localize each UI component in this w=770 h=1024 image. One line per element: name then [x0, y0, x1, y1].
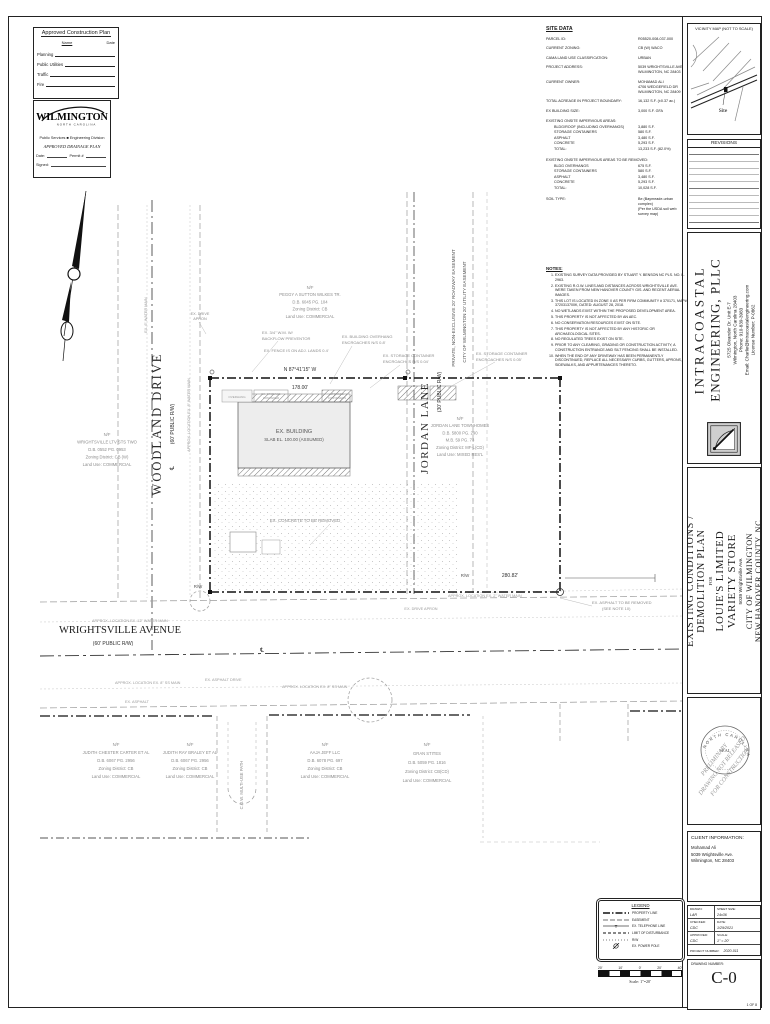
- approval-title: Approved Construction Plan: [41, 30, 111, 37]
- power-pole-icon: [603, 943, 629, 949]
- engineer-name-1: INTRACOASTAL: [692, 232, 708, 442]
- plan-sheet: { "colors":{"ink":"#1a1a1a","muted":"#8a…: [0, 0, 770, 1024]
- site-data-label: CURRENT OWNER:: [546, 80, 638, 95]
- removed-rows: BLDG OVERHANGS675 S.F.STORAGE CONTAINERS…: [546, 164, 688, 192]
- vicinity-map: Site: [689, 31, 759, 127]
- wilmington-signed-label: Signed:: [36, 163, 49, 167]
- note-item: EXISTING R.O.W. LINES AND DISTANCES ACRO…: [555, 284, 688, 298]
- scale-bar: [598, 970, 682, 977]
- signature-line: [55, 56, 115, 57]
- site-data-row: PROJECT ADDRESS:5039 WRIGHTSVILLE AVEWIL…: [546, 65, 688, 75]
- legend-item-label: EX. TELEPHONE LINE: [632, 924, 665, 928]
- legend-item-label: EASEMENT: [632, 918, 650, 922]
- approval-row: Fire: [37, 77, 115, 87]
- notes-block: NOTES: EXISTING SURVEY DATA PROVIDED BY …: [546, 266, 688, 369]
- impervious-rows: BLDG/ROOF (INCLUDING OVERHANGS)3,880 S.F…: [546, 125, 688, 153]
- note-item: THIS PROPERTY IS NOT AFFECTED BY AN AEC.: [555, 315, 688, 320]
- soil-type-label: SOIL TYPE:: [546, 197, 638, 217]
- scale-caption: Scale: 1"=20': [598, 979, 682, 984]
- engineer-titleblock: INTRACOASTAL ENGINEERING, PLLC 5725 Olea…: [687, 232, 761, 464]
- legend-item: EX. POWER POLE: [603, 943, 678, 950]
- scale-tick-label: 0': [639, 966, 642, 970]
- note-item: WHEN THE END OF ANY DRIVEWAY HAS BEEN PE…: [555, 354, 688, 368]
- approval-signature-rows: PlanningPublic UtilitiesTrafficFire: [37, 47, 115, 87]
- impervious-value: 13,233 S.F. (82.0%): [638, 147, 671, 153]
- legend-item: TEX. TELEPHONE LINE: [603, 923, 678, 930]
- legend-item-label: LIMIT OF DISTURBANCE: [632, 931, 669, 935]
- scale-tick-label: 10': [618, 966, 622, 970]
- site-data-value: 5039 WRIGHTSVILLE AVEWILMINGTON, NC 2840…: [638, 65, 683, 75]
- legend-item: R/W: [603, 936, 678, 943]
- drawing-number-value: C-0: [688, 968, 760, 988]
- site-data-value-line: WILMINGTON, NC 28403: [638, 70, 683, 75]
- legend-title: LEGEND: [603, 903, 678, 908]
- approval-col-name: Name: [37, 40, 97, 45]
- scale-tick-label: 20': [657, 966, 661, 970]
- site-data-value-line: URBAN: [638, 56, 651, 61]
- site-data-value-line: CB (W) WACO: [638, 46, 662, 51]
- client-info-box: CLIENT INFORMATION: Mohamad Ali 5039 Wri…: [687, 831, 761, 902]
- legend-box: LEGEND PROPERTY LINEEASEMENTTEX. TELEPHO…: [596, 898, 685, 962]
- legend-line-sample: [603, 937, 629, 943]
- approval-row-label: Planning: [37, 52, 53, 57]
- approved-value: CDC: [688, 938, 714, 944]
- wilmington-date-label: Date:: [36, 154, 45, 158]
- approval-row: Public Utilities: [37, 57, 115, 67]
- site-data-value: 16,132 S.F. (±0.37 ac.): [638, 99, 675, 104]
- site-data-label: CAMA LAND USE CLASSIFICATION:: [546, 56, 638, 61]
- legend-line-sample: [603, 917, 629, 923]
- legend-item-label: EX. POWER POLE: [632, 944, 659, 948]
- wilmington-state: NORTH CAROLINA: [57, 123, 97, 127]
- soil-type-value: Be (Baymeade-urban complex): [638, 197, 688, 207]
- revisions-title: REVISIONS: [688, 140, 760, 148]
- site-data-row: TOTAL ACREAGE IN PROJECT BOUNDARY:16,132…: [546, 99, 688, 104]
- checked-value: CDC: [688, 925, 714, 931]
- note-item: THIS PROPERTY IS NOT AFFECTED BY ANY HIS…: [555, 327, 688, 336]
- site-data-value: MOHAMAD ALI4706 WEDGEFIELD DRWILMINGTON,…: [638, 80, 681, 95]
- site-data-value-line: R05520-008-037-000: [638, 37, 673, 42]
- revisions-empty-rows: [689, 148, 759, 224]
- drawn-value: LAR: [688, 912, 714, 918]
- impervious-row: TOTAL:10,028 S.F.: [546, 186, 688, 192]
- engineer-seal: NORTH CAROLINA SEAL PRELIMINARY DRAWING …: [688, 698, 761, 825]
- notes-list: EXISTING SURVEY DATA PROVIDED BY STUART …: [546, 273, 688, 368]
- site-data-rows: PARCEL ID:R05520-008-037-000CURRENT ZONI…: [546, 37, 688, 114]
- engineer-logo: [706, 421, 742, 457]
- scale-value: 1" = 20': [715, 938, 760, 944]
- site-data-value: R05520-008-037-000: [638, 37, 673, 42]
- scale-tick-label: 20': [598, 966, 602, 970]
- impervious-title: EXISTING ONSITE IMPERVIOUS AREAS:: [546, 119, 688, 123]
- notes-title: NOTES:: [546, 266, 688, 271]
- graphic-scale: 20'10'0'20'40' Scale: 1"=20': [598, 966, 682, 984]
- approval-row-label: Fire: [37, 82, 44, 87]
- legend-line-sample: T: [603, 923, 629, 929]
- project-title-line2: DEMOLITION PLAN: [696, 472, 707, 690]
- site-data-label: EX BUILDING SIZE:: [546, 109, 638, 114]
- legend-line-sample: [603, 910, 629, 916]
- legend-item-label: R/W: [632, 938, 638, 942]
- client-city: Wilmington, NC 28403: [691, 858, 757, 864]
- approval-row-label: Traffic: [37, 72, 48, 77]
- site-data-label: TOTAL ACREAGE IN PROJECT BOUNDARY:: [546, 99, 638, 104]
- client-info-title: CLIENT INFORMATION:: [691, 835, 757, 842]
- note-item: THIS LOT IS LOCATED IN ZONE X AS PER FIR…: [555, 299, 688, 308]
- approval-row: Planning: [37, 47, 115, 57]
- project-number-value: 2020-011: [722, 948, 741, 954]
- soil-type-source: (Per the USDA soil web survey map): [638, 207, 688, 217]
- project-client-line2: VARIETY STORE: [726, 472, 738, 690]
- site-data-value-line: 16,132 S.F. (±0.37 ac.): [638, 99, 675, 104]
- vicinity-site-marker: [724, 87, 728, 92]
- site-data-row: PARCEL ID:R05520-008-037-000: [546, 37, 688, 42]
- wilmington-wordmark: WILMINGTON: [36, 112, 108, 123]
- site-data-row: CURRENT OWNER:MOHAMAD ALI4706 WEDGEFIELD…: [546, 80, 688, 95]
- impervious-row: TOTAL:13,233 S.F. (82.0%): [546, 147, 688, 153]
- impervious-label: TOTAL:: [546, 186, 638, 192]
- scale-tick-label: 40': [678, 966, 682, 970]
- note-item: NO CONSERVATION RESOURCES EXIST ON SITE.: [555, 321, 688, 326]
- drawing-info-table: DRAWN: LAR SHEET SIZE: 24x36 CHECKED: CD…: [687, 905, 761, 956]
- site-data-value: CB (W) WACO: [638, 46, 662, 51]
- revisions-box: REVISIONS: [687, 139, 761, 229]
- svg-text:T: T: [615, 924, 618, 929]
- approval-row-label: Public Utilities: [37, 62, 63, 67]
- engineer-license: License Number: P-0862: [750, 232, 756, 442]
- project-city: CITY OF WILMINGTON: [745, 472, 754, 690]
- site-data-label: PROJECT ADDRESS:: [546, 65, 638, 75]
- date-value: 1/29/2021: [715, 925, 760, 931]
- site-data-block: SITE DATA PARCEL ID:R05520-008-037-000CU…: [546, 26, 688, 222]
- wilmington-plan-type: APPROVED DRAINAGE PLAN: [36, 144, 108, 149]
- signature-line: [50, 76, 115, 77]
- drawing-number-label: DRAWING NUMBER:: [688, 960, 760, 966]
- note-item: PRIOR TO ANY CLEARING, GRADING OR CONSTR…: [555, 343, 688, 352]
- vicinity-map-box: VICINITY MAP (NOT TO SCALE) Site: [687, 23, 761, 135]
- site-data-label: PARCEL ID:: [546, 37, 638, 42]
- wilmington-logo: WILMINGTON NORTH CAROLINA: [36, 103, 108, 129]
- legend-item: PROPERTY LINE: [603, 910, 678, 917]
- engineer-name-2: ENGINEERING, PLLC: [708, 232, 724, 442]
- project-number-label: PROJECT NUMBER:: [688, 948, 722, 954]
- site-data-value-line: 3,000 S.F. GFA: [638, 109, 663, 114]
- seal-preliminary-overlay: PRELIMINARY DRAWING NOT RELEASED FOR CON…: [689, 729, 756, 804]
- legend-item: LIMIT OF DISTURBANCE: [603, 930, 678, 937]
- project-title-line1: EXISTING CONDITIONS /: [687, 472, 696, 690]
- drawing-number-box: DRAWING NUMBER: C-0 1 OF 8: [687, 959, 761, 1010]
- site-data-title: SITE DATA: [546, 26, 688, 32]
- project-county: NEW HANOVER COUNTY, NC: [754, 472, 761, 690]
- site-data-value-line: WILMINGTON, NC 28409: [638, 90, 681, 95]
- site-data-row: CURRENT ZONING:CB (W) WACO: [546, 46, 688, 51]
- site-data-row: CAMA LAND USE CLASSIFICATION:URBAN: [546, 56, 688, 61]
- impervious-label: TOTAL:: [546, 147, 638, 153]
- legend-items: PROPERTY LINEEASEMENTTEX. TELEPHONE LINE…: [603, 910, 678, 950]
- sheet-count: 1 OF 8: [747, 1003, 757, 1007]
- legend-item: EASEMENT: [603, 917, 678, 924]
- removed-title: EXISTING ONSITE IMPERVIOUS AREAS TO BE R…: [546, 158, 688, 162]
- approval-col-date: Date: [97, 40, 115, 45]
- vicinity-site-label: Site: [719, 108, 728, 114]
- site-data-value: URBAN: [638, 56, 651, 61]
- signature-line: [65, 66, 115, 67]
- project-address: 5039 Wrightsville Ave.: [739, 472, 744, 690]
- site-data-row: EX BUILDING SIZE:3,000 S.F. GFA: [546, 109, 688, 114]
- site-data-value: 3,000 S.F. GFA: [638, 109, 663, 114]
- legend-line-sample: [603, 930, 629, 936]
- note-item: EXISTING SURVEY DATA PROVIDED BY STUART …: [555, 273, 688, 282]
- impervious-value: 10,028 S.F.: [638, 186, 657, 192]
- approved-construction-plan-box: Approved Construction Plan Name Date Pla…: [33, 27, 119, 99]
- engineer-seal-box: NORTH CAROLINA SEAL PRELIMINARY DRAWING …: [687, 697, 761, 825]
- wilmington-permit-label: Permit #: [69, 154, 83, 158]
- project-titleblock: EXISTING CONDITIONS / DEMOLITION PLAN FO…: [687, 467, 761, 694]
- wilmington-dept: Public Services ■ Engineering Division: [36, 136, 108, 140]
- signature-line: [46, 86, 115, 87]
- city-of-wilmington-box: WILMINGTON NORTH CAROLINA Public Service…: [33, 100, 111, 178]
- legend-item-label: PROPERTY LINE: [632, 911, 657, 915]
- site-data-label: CURRENT ZONING:: [546, 46, 638, 51]
- approval-row: Traffic: [37, 67, 115, 77]
- note-item: NO REGULATED TREES EXIST ON SITE.: [555, 337, 688, 342]
- sheet-size-value: 24x36: [715, 912, 760, 918]
- project-for: FOR: [708, 472, 713, 690]
- project-client-line1: LOUIE'S LIMITED: [714, 472, 726, 690]
- note-item: NO WETLANDS EXIST WITHIN THE PROPOSED DE…: [555, 309, 688, 314]
